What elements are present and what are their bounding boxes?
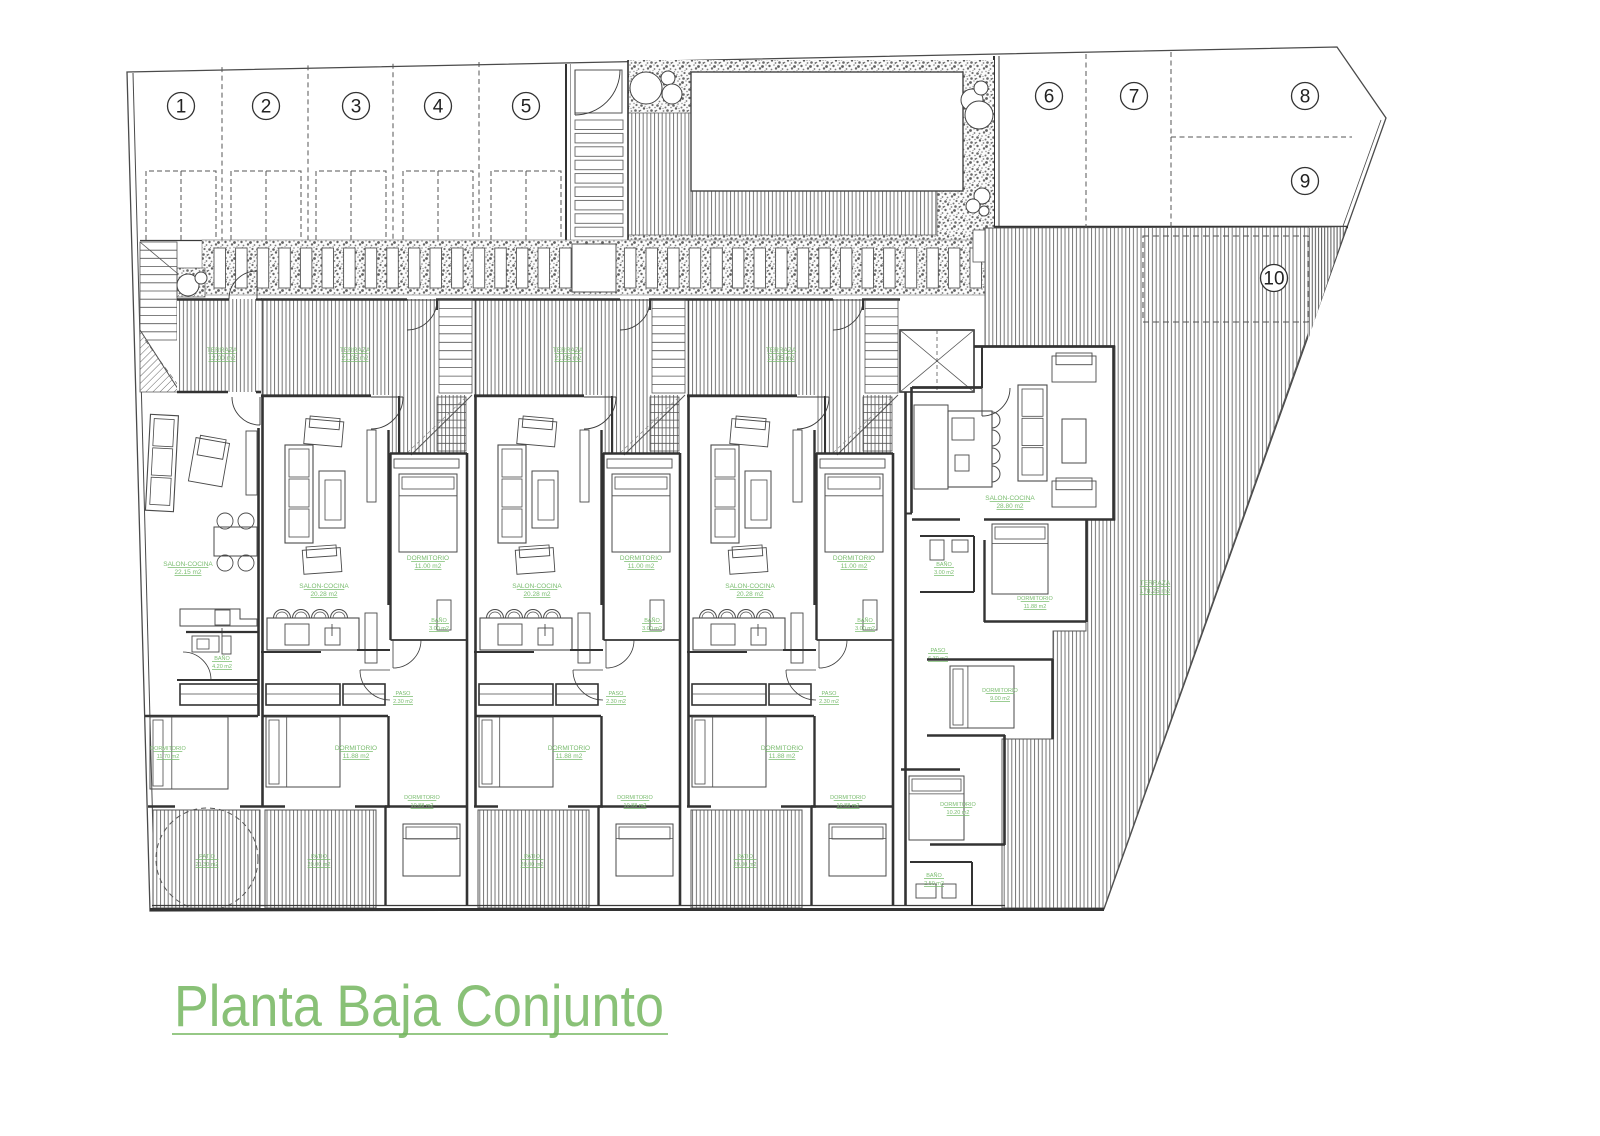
svg-text:11.88 m2: 11.88 m2 — [769, 753, 796, 760]
svg-text:3.00 m2: 3.00 m2 — [934, 570, 954, 576]
svg-text:2.30 m2: 2.30 m2 — [393, 699, 413, 705]
svg-text:TERRAZA: TERRAZA — [207, 347, 238, 354]
svg-text:DORMITORIO: DORMITORIO — [982, 688, 1018, 694]
svg-text:PASO: PASO — [609, 691, 625, 697]
svg-text:11.00 m2: 11.00 m2 — [628, 563, 655, 570]
svg-text:21.30 m2: 21.30 m2 — [196, 862, 219, 868]
svg-text:DORMITORIO: DORMITORIO — [548, 745, 590, 752]
svg-text:DORMITORIO: DORMITORIO — [335, 745, 377, 752]
svg-text:9: 9 — [1300, 172, 1311, 193]
svg-text:DORMITORIO: DORMITORIO — [620, 555, 662, 562]
svg-text:DORMITORIO: DORMITORIO — [404, 795, 440, 801]
svg-text:SALON-COCINA: SALON-COCINA — [299, 583, 349, 590]
svg-text:6: 6 — [1044, 87, 1055, 108]
svg-text:11.00 m2: 11.00 m2 — [841, 563, 868, 570]
svg-text:11.88 m2: 11.88 m2 — [343, 753, 370, 760]
svg-text:SALON-COCINA: SALON-COCINA — [512, 583, 562, 590]
svg-text:DORMITORIO: DORMITORIO — [617, 795, 653, 801]
svg-text:2.30 m2: 2.30 m2 — [819, 699, 839, 705]
svg-text:DORMITORIO: DORMITORIO — [1017, 596, 1053, 602]
svg-text:20.00 m2: 20.00 m2 — [734, 862, 757, 868]
svg-text:10.88 m2: 10.88 m2 — [624, 803, 647, 809]
svg-text:DORMITORIO: DORMITORIO — [940, 802, 976, 808]
svg-text:BAÑO: BAÑO — [926, 872, 942, 879]
svg-text:10.88 m2: 10.88 m2 — [411, 803, 434, 809]
svg-text:SALON-COCINA: SALON-COCINA — [985, 495, 1035, 502]
svg-text:5: 5 — [521, 97, 532, 118]
svg-text:TERRAZA: TERRAZA — [766, 347, 797, 354]
svg-text:DORMITORIO: DORMITORIO — [761, 745, 803, 752]
svg-text:11.88 m2: 11.88 m2 — [556, 753, 583, 760]
svg-text:12.00 m2: 12.00 m2 — [208, 355, 235, 362]
svg-text:3: 3 — [351, 97, 362, 118]
svg-text:2.50 m2: 2.50 m2 — [924, 881, 944, 887]
svg-text:28.80 m2: 28.80 m2 — [996, 503, 1023, 510]
svg-text:10: 10 — [1263, 269, 1284, 290]
svg-text:4.20 m2: 4.20 m2 — [212, 664, 232, 670]
svg-text:TERRAZA: TERRAZA — [1140, 580, 1171, 587]
svg-text:20.28 m2: 20.28 m2 — [523, 591, 550, 598]
svg-text:7: 7 — [1129, 87, 1140, 108]
svg-text:BAÑO: BAÑO — [644, 617, 660, 624]
svg-text:20.00 m2: 20.00 m2 — [521, 862, 544, 868]
svg-text:BAÑO: BAÑO — [857, 617, 873, 624]
svg-text:3.00 m2: 3.00 m2 — [642, 626, 662, 632]
svg-text:20.28 m2: 20.28 m2 — [310, 591, 337, 598]
svg-text:BAÑO: BAÑO — [214, 655, 230, 662]
svg-text:PATIO: PATIO — [737, 854, 753, 860]
svg-text:21.05 m2: 21.05 m2 — [554, 355, 581, 362]
svg-text:8: 8 — [1300, 87, 1311, 108]
svg-text:PASO: PASO — [822, 691, 838, 697]
svg-text:DORMITORIO: DORMITORIO — [150, 746, 186, 752]
svg-text:178.25 m2: 178.25 m2 — [1140, 588, 1171, 595]
svg-text:20.28 m2: 20.28 m2 — [736, 591, 763, 598]
svg-text:11.00 m2: 11.00 m2 — [415, 563, 442, 570]
svg-text:PATIO: PATIO — [311, 854, 327, 860]
svg-text:9.00 m2: 9.00 m2 — [990, 696, 1010, 702]
svg-text:Planta Baja Conjunto: Planta Baja Conjunto — [174, 974, 664, 1039]
svg-text:SALON-COCINA: SALON-COCINA — [163, 561, 213, 568]
svg-text:PASO: PASO — [396, 691, 412, 697]
svg-text:TERRAZA: TERRAZA — [553, 347, 584, 354]
svg-text:PASO: PASO — [931, 648, 947, 654]
svg-text:DORMITORIO: DORMITORIO — [830, 795, 866, 801]
svg-text:21.05 m2: 21.05 m2 — [341, 355, 368, 362]
svg-text:10.88 m2: 10.88 m2 — [837, 803, 860, 809]
svg-text:BAÑO: BAÑO — [431, 617, 447, 624]
svg-text:PATIO: PATIO — [199, 854, 215, 860]
svg-text:3.00 m2: 3.00 m2 — [855, 626, 875, 632]
svg-text:1: 1 — [176, 97, 187, 118]
svg-text:10.20 m2: 10.20 m2 — [947, 810, 970, 816]
svg-text:22.15 m2: 22.15 m2 — [174, 569, 201, 576]
svg-text:3.00 m2: 3.00 m2 — [429, 626, 449, 632]
svg-text:DORMITORIO: DORMITORIO — [407, 555, 449, 562]
svg-text:BAÑO: BAÑO — [936, 561, 952, 568]
svg-text:2.30 m2: 2.30 m2 — [606, 699, 626, 705]
svg-text:DORMITORIO: DORMITORIO — [833, 555, 875, 562]
svg-text:21.05 m2: 21.05 m2 — [767, 355, 794, 362]
svg-text:SALON-COCINA: SALON-COCINA — [725, 583, 775, 590]
svg-text:PATIO: PATIO — [524, 854, 540, 860]
svg-text:20.00 m2: 20.00 m2 — [308, 862, 331, 868]
svg-text:TERRAZA: TERRAZA — [340, 347, 371, 354]
svg-text:11.70 m2: 11.70 m2 — [157, 754, 180, 760]
svg-text:4: 4 — [433, 97, 444, 118]
svg-text:2: 2 — [261, 97, 272, 118]
svg-text:11.88 m2: 11.88 m2 — [1024, 604, 1047, 610]
